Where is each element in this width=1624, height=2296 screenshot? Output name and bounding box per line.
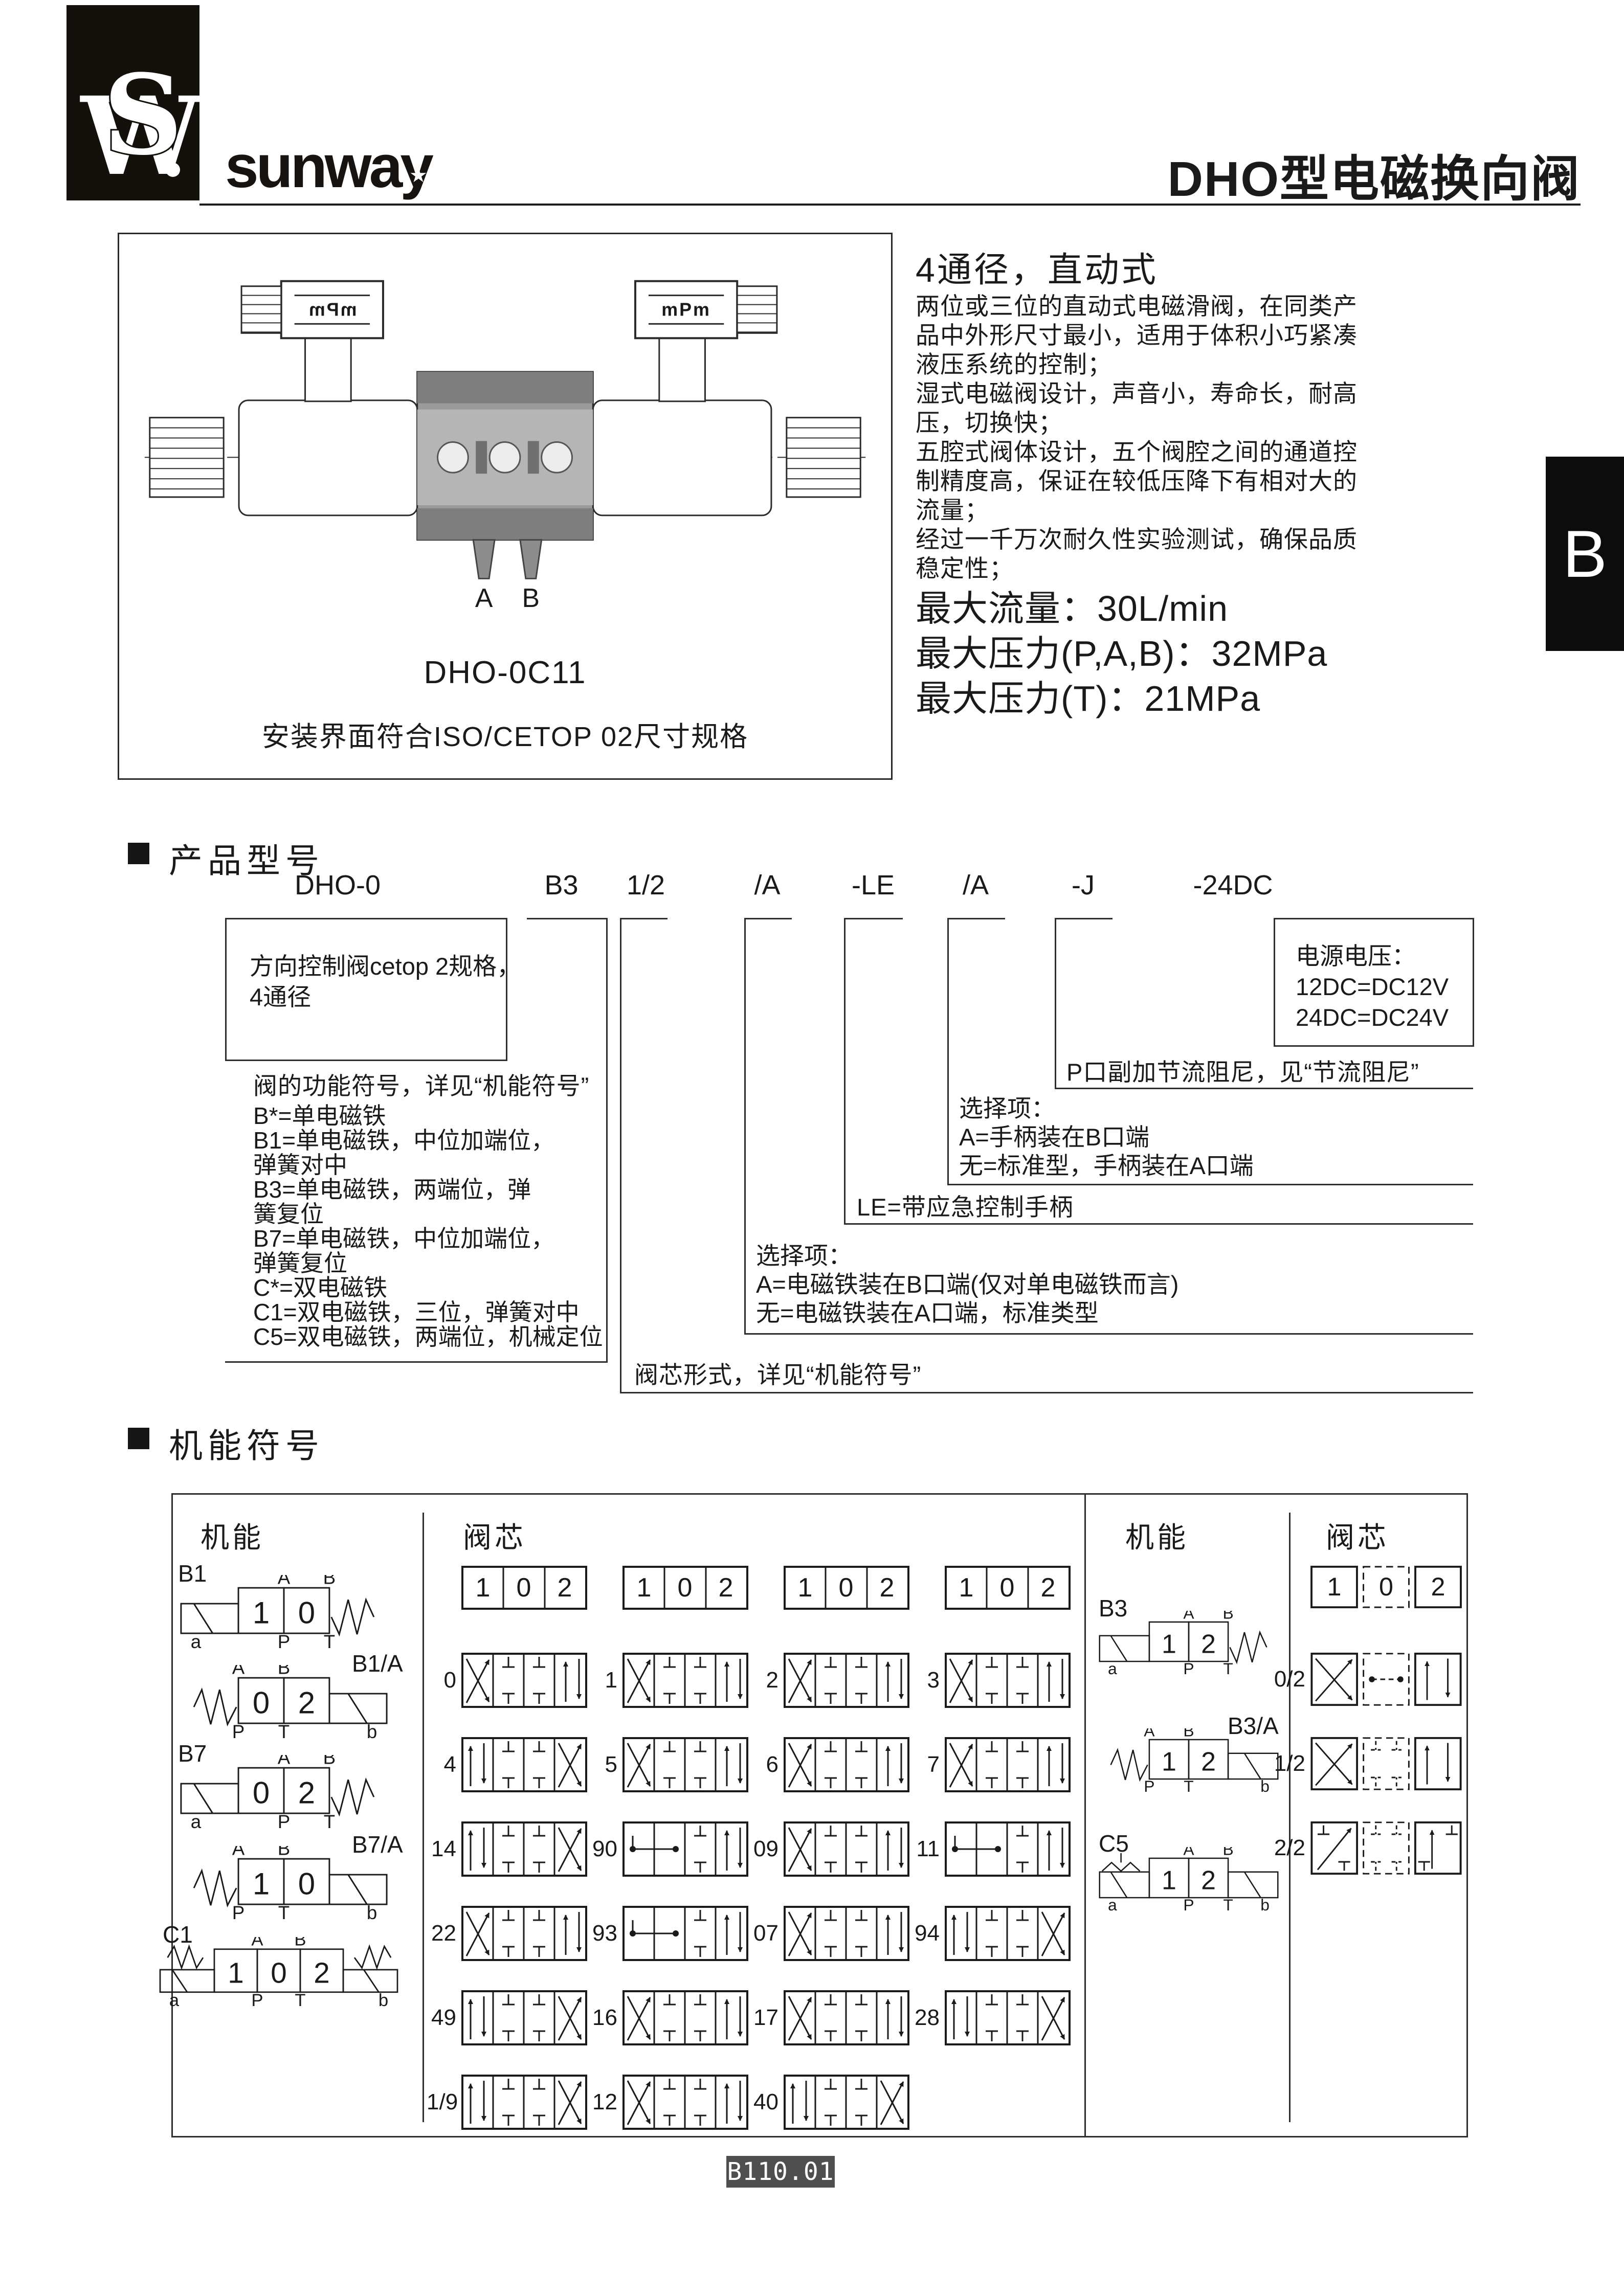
svg-text:A: A xyxy=(475,583,493,613)
bracket-b3-hline xyxy=(225,1361,608,1363)
col-header-spool-right: 阀芯 xyxy=(1326,1515,1389,1556)
spool-symbol xyxy=(783,1652,910,1709)
bracket-le-vline xyxy=(844,918,846,1225)
spec-lines: 最大流量：30L/min最大压力(P,A,B)：32MPa最大压力(T)：21M… xyxy=(916,586,1327,721)
spool-symbol xyxy=(944,1905,1072,1962)
brand-wordmark: sunway xyxy=(225,132,431,201)
voltage-option-12dc: 12DC=DC12V xyxy=(1296,972,1473,1002)
section-bullet-icon xyxy=(128,843,149,864)
spool-label: 17 xyxy=(749,1989,778,2046)
spool-symbol xyxy=(621,2074,749,2131)
svg-text:A: A xyxy=(1144,1728,1155,1740)
table-divider-1 xyxy=(422,1513,424,2122)
bracket-b3-vline xyxy=(606,918,608,1363)
model-code-segment: -J xyxy=(1046,869,1120,901)
spool-cell xyxy=(783,1989,910,2046)
voltage-title: 电源电压： xyxy=(1296,941,1473,972)
spool-cell xyxy=(944,1652,1072,1709)
model-code-segment: -24DC xyxy=(1186,869,1280,901)
spool-symbol xyxy=(783,1736,910,1793)
svg-text:2: 2 xyxy=(1201,1747,1216,1776)
figure-model-caption: DHO-0C11 xyxy=(119,655,891,691)
spool-label: 93 xyxy=(588,1905,617,1962)
spool-symbol xyxy=(621,1905,749,1962)
svg-text:A: A xyxy=(232,1846,245,1859)
valve-function-symbol: 102ABPTab xyxy=(153,1937,404,2007)
spool-cell xyxy=(460,1989,588,2046)
damping-note: P口副加节流阻尼，见“节流阻尼” xyxy=(1066,1052,1419,1088)
spool-cell xyxy=(460,1736,588,1793)
solenoid-option-a: A=电磁铁装在B口端(仅对单电磁铁而言) xyxy=(756,1270,1178,1299)
solenoid-option-none: 无=电磁铁装在A口端，标准类型 xyxy=(756,1299,1178,1327)
spool-label: 5 xyxy=(588,1736,617,1793)
spool-symbol xyxy=(460,2074,588,2131)
svg-text:0: 0 xyxy=(839,1573,854,1603)
function-symbol-c1: 102ABPTab xyxy=(153,1937,404,2007)
function-symbol-b7-a: 10ABPTb xyxy=(174,1846,394,1920)
series-description-box: 方向控制阀cetop 2规格， 4通径 xyxy=(225,918,507,1061)
svg-text:0: 0 xyxy=(517,1573,531,1603)
spool-symbol xyxy=(783,1989,910,2046)
section-index-tab: B xyxy=(1546,457,1624,651)
intro-heading: 4通径，直动式 xyxy=(916,241,1158,292)
spool-symbol xyxy=(460,1905,588,1962)
spool-symbol xyxy=(460,1989,588,2046)
handle-option-note: 选择项： A=手柄装在B口端 无=标准型，手柄装在A口端 xyxy=(959,1094,1254,1180)
function-symbol-b3-a: 12ABPTb xyxy=(1094,1728,1284,1793)
spool-label: 3 xyxy=(910,1652,940,1709)
svg-text:A: A xyxy=(278,1575,291,1588)
bracket-a2-hline xyxy=(947,1184,1473,1185)
spool-label: 11 xyxy=(910,1820,940,1878)
svg-text:0: 0 xyxy=(253,1776,270,1810)
svg-text:mPm: mPm xyxy=(661,299,711,320)
svg-text:0: 0 xyxy=(298,1867,315,1901)
spool-symbol xyxy=(460,1820,588,1878)
svg-text:A: A xyxy=(1183,1847,1194,1858)
bracket-spool-vline xyxy=(620,918,621,1393)
table-divider-3 xyxy=(1289,1513,1291,2122)
bracket-a1-vline xyxy=(744,918,746,1335)
svg-text:2: 2 xyxy=(298,1686,315,1720)
svg-text:a: a xyxy=(1108,1896,1117,1911)
spool-label: 09 xyxy=(749,1820,778,1878)
spool-symbol xyxy=(1309,1736,1463,1791)
svg-text:b: b xyxy=(367,1721,377,1739)
page-title: DHO型电磁换向阀 xyxy=(767,139,1581,210)
svg-text:b: b xyxy=(379,1991,388,2007)
intro-line: 制精度高，保证在较低压降下有相对大的 xyxy=(916,466,1358,496)
svg-text:T: T xyxy=(324,1811,335,1829)
spool-cell xyxy=(621,1989,749,2046)
spool-symbol xyxy=(460,1736,588,1793)
lever-note: LE=带应急控制手柄 xyxy=(857,1187,1074,1223)
brand-logo-block: W S xyxy=(66,5,199,200)
function-symbol-b1-a: 02ABPTb xyxy=(174,1665,394,1739)
svg-text:A: A xyxy=(1183,1611,1194,1622)
svg-text:a: a xyxy=(1108,1659,1117,1675)
svg-text:S: S xyxy=(103,50,183,179)
svg-text:1: 1 xyxy=(228,1957,243,1989)
spool-cell xyxy=(783,1820,910,1878)
model-code-segment: DHO-0 xyxy=(284,869,391,901)
spool-label: 16 xyxy=(588,1989,617,2046)
spool-label: 49 xyxy=(427,1989,456,2046)
svg-text:b: b xyxy=(1260,1896,1270,1911)
svg-text:0: 0 xyxy=(1000,1573,1015,1603)
svg-text:B: B xyxy=(1183,1728,1194,1740)
svg-text:B: B xyxy=(278,1665,291,1678)
spool-label: 2 xyxy=(749,1652,778,1709)
svg-text:T: T xyxy=(1223,1896,1233,1911)
handle-option-a: A=手柄装在B口端 xyxy=(959,1123,1254,1152)
spool-cell xyxy=(460,1652,588,1709)
svg-text:2: 2 xyxy=(1041,1573,1056,1603)
valve-function-symbol: 10ABPTa xyxy=(174,1575,394,1649)
svg-text:0: 0 xyxy=(298,1596,315,1630)
svg-text:0: 0 xyxy=(253,1686,270,1720)
svg-text:a: a xyxy=(169,1991,180,2007)
spool-label: 4 xyxy=(427,1736,456,1793)
spool-symbol xyxy=(944,1652,1072,1709)
spool-cell xyxy=(944,1820,1072,1878)
spool-symbol xyxy=(944,1820,1072,1878)
spool-label: 0/2 xyxy=(1272,1652,1305,1707)
svg-text:2: 2 xyxy=(314,1957,329,1989)
svg-text:2: 2 xyxy=(298,1776,315,1810)
model-code-segment: 1/2 xyxy=(609,869,683,901)
svg-text:2: 2 xyxy=(1201,1629,1216,1659)
spool-label: 7 xyxy=(910,1736,940,1793)
function-symbol-b7: 02ABPTa xyxy=(174,1755,394,1829)
svg-text:1: 1 xyxy=(959,1573,974,1603)
intro-line: 品中外形尺寸最小，适用于体积小巧紧凑 xyxy=(916,321,1358,350)
spool-cell xyxy=(621,2074,749,2131)
spool-header: 102 xyxy=(460,1565,588,1611)
spec-line: 最大压力(T)：21MPa xyxy=(916,676,1327,721)
intro-paragraphs: 两位或三位的直动式电磁滑阀，在同类产品中外形尺寸最小，适用于体积小巧紧凑液压系统… xyxy=(916,291,1358,583)
svg-text:T: T xyxy=(295,1991,305,2007)
spool-label: 1/2 xyxy=(1272,1736,1305,1791)
spool-symbol xyxy=(1309,1652,1463,1707)
spool-header: 102 xyxy=(1309,1565,1463,1609)
function-code-list: B*=单电磁铁B1=单电磁铁，中位加端位，弹簧对中B3=单电磁铁，两端位，弹簧复… xyxy=(253,1104,603,1349)
svg-text:A: A xyxy=(251,1937,263,1949)
svg-text:1: 1 xyxy=(253,1596,270,1630)
svg-text:1: 1 xyxy=(476,1573,491,1603)
svg-text:1: 1 xyxy=(253,1867,270,1901)
spool-cell xyxy=(944,1905,1072,1962)
svg-text:0: 0 xyxy=(678,1573,693,1603)
solenoid-option-title: 选择项： xyxy=(756,1242,1178,1270)
spool-label: 12 xyxy=(588,2074,617,2131)
spool-symbol xyxy=(783,1905,910,1962)
svg-text:P: P xyxy=(278,1631,291,1649)
svg-text:T: T xyxy=(278,1902,290,1920)
spool-label: 28 xyxy=(910,1989,940,2046)
section-bullet-icon xyxy=(128,1428,149,1449)
spool-label: 1 xyxy=(588,1652,617,1709)
valve-function-symbol: 02ABPTb xyxy=(174,1665,394,1739)
spec-line: 最大流量：30L/min xyxy=(916,586,1327,631)
svg-text:B: B xyxy=(1222,1847,1233,1858)
bracket-a2-vline xyxy=(947,918,949,1185)
function-list-item: 弹簧复位 xyxy=(253,1251,603,1275)
spool-symbol xyxy=(621,1652,749,1709)
svg-text:a: a xyxy=(191,1811,202,1829)
solenoid-option-note: 选择项： A=电磁铁装在B口端(仅对单电磁铁而言) 无=电磁铁装在A口端，标准类… xyxy=(756,1242,1178,1327)
spool-cell xyxy=(460,1820,588,1878)
spool-cell xyxy=(944,1989,1072,2046)
valve-function-symbol: 02ABPTa xyxy=(174,1755,394,1829)
spool-cell xyxy=(621,1905,749,1962)
function-list-item: B*=单电磁铁 xyxy=(253,1104,603,1128)
valve-cross-section-drawing: ABmPmmPm xyxy=(119,238,891,646)
svg-text:P: P xyxy=(278,1811,291,1829)
spool-symbol xyxy=(621,1989,749,2046)
spool-cell xyxy=(460,2074,588,2131)
svg-text:P: P xyxy=(1144,1777,1154,1793)
col-header-func-right: 机能 xyxy=(1125,1515,1189,1556)
spool-cell xyxy=(621,1820,749,1878)
spool-note: 阀芯形式，详见“机能符号” xyxy=(634,1355,921,1390)
spool-symbol xyxy=(783,1820,910,1878)
svg-text:P: P xyxy=(1183,1659,1194,1675)
function-list-item: B3=单电磁铁，两端位，弹 xyxy=(253,1177,603,1202)
spool-symbol xyxy=(621,1736,749,1793)
header-rule xyxy=(199,204,1581,206)
svg-text:2: 2 xyxy=(719,1573,733,1603)
spool-cell xyxy=(1309,1736,1463,1791)
handle-option-none: 无=标准型，手柄装在A口端 xyxy=(959,1152,1254,1180)
code-underline-a1 xyxy=(744,918,792,919)
function-symbol-c5: 12ABPTab xyxy=(1094,1847,1284,1911)
bracket-spool-hline xyxy=(620,1392,1473,1393)
function-list-item: C*=双电磁铁 xyxy=(253,1275,603,1300)
intro-line: 湿式电磁阀设计，声音小，寿命长，耐高 xyxy=(916,379,1358,408)
svg-text:P: P xyxy=(232,1902,245,1920)
series-line-1: 方向控制阀cetop 2规格， xyxy=(250,951,506,982)
spool-symbol xyxy=(944,1736,1072,1793)
svg-text:2: 2 xyxy=(880,1573,895,1603)
symbols-section-title: 机能符号 xyxy=(169,1419,324,1468)
spool-label: 22 xyxy=(427,1905,456,1962)
bracket-j-hline xyxy=(1055,1088,1473,1089)
code-underline-le xyxy=(844,918,903,919)
spool-cell xyxy=(944,1736,1072,1793)
svg-text:A: A xyxy=(278,1755,291,1768)
valve-function-symbol: 12ABPTb xyxy=(1094,1728,1284,1793)
spool-cell xyxy=(621,1652,749,1709)
svg-text:1: 1 xyxy=(1327,1572,1342,1601)
spool-cell xyxy=(783,1905,910,1962)
svg-text:P: P xyxy=(232,1721,245,1739)
code-underline-spool xyxy=(620,918,668,919)
intro-line: 两位或三位的直动式电磁滑阀，在同类产 xyxy=(916,291,1358,321)
svg-text:P: P xyxy=(251,1991,263,2007)
function-symbol-b3: 12ABPTa xyxy=(1094,1611,1284,1675)
spool-symbol xyxy=(783,2074,910,2131)
spool-header-box: 102 xyxy=(944,1565,1072,1611)
svg-text:T: T xyxy=(324,1631,335,1649)
spool-cell xyxy=(783,1652,910,1709)
svg-text:1: 1 xyxy=(1162,1747,1176,1776)
spool-cell xyxy=(1309,1820,1463,1876)
spool-cell xyxy=(783,1736,910,1793)
svg-text:b: b xyxy=(1260,1777,1270,1793)
bracket-a1-hline xyxy=(744,1333,1473,1335)
spool-symbol xyxy=(460,1652,588,1709)
datasheet-page: W S sunway ★ DHO型电磁换向阀 B ABmPmmPm DHO-0C… xyxy=(0,0,1624,2296)
spool-label: 6 xyxy=(749,1736,778,1793)
svg-text:2: 2 xyxy=(558,1573,572,1603)
svg-text:b: b xyxy=(367,1902,377,1920)
intro-line: 压，切换快； xyxy=(916,408,1358,437)
page-code: B110.01 xyxy=(727,2157,834,2186)
spool-symbol xyxy=(1309,1820,1463,1876)
model-code-segment: /A xyxy=(731,869,803,901)
function-list-item: 簧复位 xyxy=(253,1202,603,1226)
function-list-item: 弹簧对中 xyxy=(253,1153,603,1177)
function-list-item: C5=双电磁铁，两端位，机械定位 xyxy=(253,1324,603,1349)
svg-text:0: 0 xyxy=(1379,1572,1393,1601)
svg-text:T: T xyxy=(1184,1777,1193,1793)
svg-text:P: P xyxy=(1183,1896,1194,1911)
intro-line: 流量； xyxy=(916,496,1358,525)
svg-text:B: B xyxy=(294,1937,306,1949)
valve-function-symbol: 12ABPTa xyxy=(1094,1611,1284,1675)
spool-header: 102 xyxy=(621,1565,749,1611)
model-code-segment: /A xyxy=(939,869,1013,901)
svg-text:1: 1 xyxy=(798,1573,813,1603)
svg-text:B: B xyxy=(1222,1611,1233,1622)
function-note: 阀的功能符号，详见“机能符号” xyxy=(253,1066,589,1101)
spool-label: 2/2 xyxy=(1272,1820,1305,1876)
code-underline-a2 xyxy=(947,918,1005,919)
spec-line: 最大压力(P,A,B)：32MPa xyxy=(916,631,1327,676)
table-divider-2 xyxy=(1084,1495,1086,2136)
handle-option-title: 选择项： xyxy=(959,1094,1254,1123)
svg-text:B: B xyxy=(323,1755,336,1768)
voltage-box: 电源电压： 12DC=DC12V 24DC=DC24V xyxy=(1274,918,1474,1047)
svg-text:1: 1 xyxy=(637,1573,652,1603)
series-line-2: 4通径 xyxy=(250,982,506,1012)
svg-text:B: B xyxy=(278,1846,291,1859)
col-header-func-left: 机能 xyxy=(201,1515,264,1556)
bracket-j-vline xyxy=(1055,918,1056,1089)
page-code-badge: B110.01 xyxy=(726,2156,835,2188)
spool-header-box: 102 xyxy=(460,1565,588,1611)
spool-cell xyxy=(621,1736,749,1793)
spool-header-box: 102 xyxy=(783,1565,910,1611)
function-list-item: B7=单电磁铁，中位加端位， xyxy=(253,1226,603,1251)
spool-label: 0 xyxy=(427,1652,456,1709)
spool-header-box: 102 xyxy=(1309,1565,1463,1609)
valve-function-symbol: 10ABPTb xyxy=(174,1846,394,1920)
svg-text:1: 1 xyxy=(1162,1629,1176,1659)
spool-label: 40 xyxy=(749,2074,778,2131)
spool-label: 90 xyxy=(588,1820,617,1878)
intro-line: 液压系统的控制； xyxy=(916,350,1358,379)
svg-text:T: T xyxy=(1223,1659,1233,1675)
model-code-segment: B3 xyxy=(522,869,601,901)
voltage-option-24dc: 24DC=DC24V xyxy=(1296,1002,1473,1033)
spool-header: 102 xyxy=(944,1565,1072,1611)
svg-text:2: 2 xyxy=(1201,1865,1216,1895)
svg-text:B: B xyxy=(323,1575,336,1588)
spool-cell xyxy=(1309,1652,1463,1707)
spool-label: 1/9 xyxy=(427,2074,456,2131)
spool-header: 102 xyxy=(783,1565,910,1611)
svg-text:a: a xyxy=(191,1631,202,1649)
model-code-segment: -LE xyxy=(833,869,914,901)
code-underline-j xyxy=(1055,918,1113,919)
function-symbol-b1: 10ABPTa xyxy=(174,1575,394,1649)
spool-label: 94 xyxy=(910,1905,940,1962)
spool-cell xyxy=(460,1905,588,1962)
spool-header-box: 102 xyxy=(621,1565,749,1611)
intro-line: 五腔式阀体设计，五个阀腔之间的通道控 xyxy=(916,437,1358,466)
spool-cell xyxy=(783,2074,910,2131)
spool-label: 07 xyxy=(749,1905,778,1962)
figure-mount-note: 安装界面符合ISO/CETOP 02尺寸规格 xyxy=(119,714,891,754)
svg-text:2: 2 xyxy=(1431,1572,1445,1601)
valve-function-symbol: 12ABPTab xyxy=(1094,1847,1284,1911)
svg-text:T: T xyxy=(278,1721,290,1739)
svg-text:0: 0 xyxy=(271,1957,286,1989)
function-list-item: B1=单电磁铁，中位加端位， xyxy=(253,1128,603,1153)
col-header-spool-left: 阀芯 xyxy=(463,1515,526,1556)
function-list-item: C1=双电磁铁，三位，弹簧对中 xyxy=(253,1300,603,1324)
svg-text:B: B xyxy=(522,583,540,613)
brand-star-icon: ★ xyxy=(409,164,428,187)
spool-symbol xyxy=(944,1989,1072,2046)
spool-symbol xyxy=(621,1820,749,1878)
code-underline-b3 xyxy=(527,918,608,919)
product-figure-box: ABmPmmPm DHO-0C11 安装界面符合ISO/CETOP 02尺寸规格 xyxy=(118,233,893,780)
svg-text:1: 1 xyxy=(1162,1865,1176,1895)
ws-monogram-icon: W S xyxy=(66,5,199,200)
intro-line: 经过一千万次耐久性实验测试，确保品质 xyxy=(916,525,1358,554)
svg-text:A: A xyxy=(232,1665,245,1678)
spool-label: 14 xyxy=(427,1820,456,1878)
intro-line: 稳定性； xyxy=(916,554,1358,583)
bracket-le-hline xyxy=(844,1223,1473,1225)
svg-text:mPm: mPm xyxy=(307,299,357,320)
section-index-letter: B xyxy=(1563,515,1607,592)
